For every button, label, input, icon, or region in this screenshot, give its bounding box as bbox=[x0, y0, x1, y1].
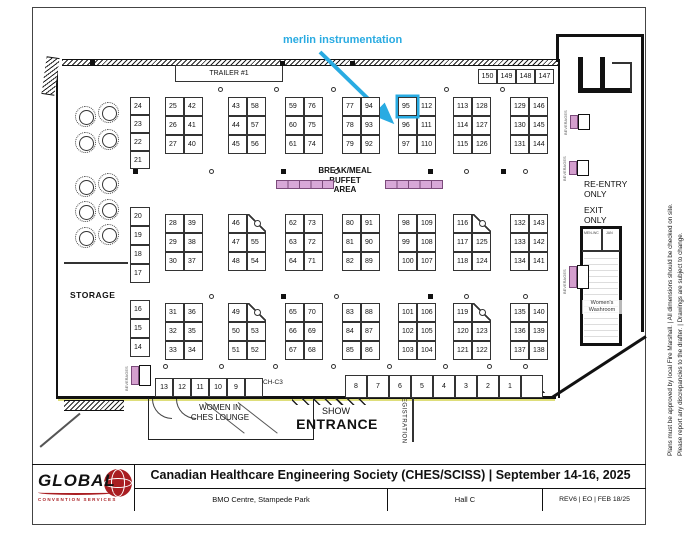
booths-layer: 2542264127404358445745565976607561747794… bbox=[0, 0, 690, 533]
beverage-station-label: BEVERAGES bbox=[125, 364, 131, 391]
booth-137: 137 bbox=[510, 341, 529, 360]
booth-38: 38 bbox=[184, 233, 203, 252]
booth-139: 139 bbox=[529, 322, 548, 341]
pillar-square bbox=[501, 169, 506, 174]
round-table-top bbox=[102, 106, 117, 121]
round-table-top bbox=[79, 136, 94, 151]
round-table bbox=[98, 224, 119, 245]
booth-74: 74 bbox=[304, 135, 323, 154]
booth-88: 88 bbox=[361, 303, 380, 322]
round-table-top bbox=[79, 180, 94, 195]
booth-99: 99 bbox=[398, 233, 417, 252]
round-table bbox=[75, 132, 96, 153]
pillar-square bbox=[428, 294, 433, 299]
booth-71: 71 bbox=[304, 252, 323, 271]
booth-132: 132 bbox=[510, 214, 529, 233]
booth-10: 10 bbox=[209, 378, 227, 397]
booth-34: 34 bbox=[184, 341, 203, 360]
booth-133: 133 bbox=[510, 233, 529, 252]
booth-9: 9 bbox=[227, 378, 245, 397]
pillar-circle bbox=[163, 364, 168, 369]
booth-116: 116 bbox=[453, 214, 472, 233]
booth-66: 66 bbox=[285, 322, 304, 341]
booth-55: 55 bbox=[247, 233, 266, 252]
booth-15: 15 bbox=[130, 319, 150, 338]
round-table-top bbox=[79, 110, 94, 125]
booth-83: 83 bbox=[342, 303, 361, 322]
booth-58: 58 bbox=[247, 97, 266, 116]
round-table bbox=[75, 176, 96, 197]
booth-39: 39 bbox=[184, 214, 203, 233]
booth-104: 104 bbox=[417, 341, 436, 360]
booth-143: 143 bbox=[529, 214, 548, 233]
booth-42: 42 bbox=[184, 97, 203, 116]
pillar-circle bbox=[464, 169, 469, 174]
round-table-top bbox=[102, 177, 117, 192]
booth-89: 89 bbox=[361, 252, 380, 271]
pillar-circle bbox=[274, 87, 279, 92]
booth-26: 26 bbox=[165, 116, 184, 135]
booth-121: 121 bbox=[453, 341, 472, 360]
pillar-circle bbox=[218, 87, 223, 92]
round-table bbox=[98, 129, 119, 150]
booth-79: 79 bbox=[342, 135, 361, 154]
floor-plan-sheet: TRAILER #1 merlin instrumentation BREAK/… bbox=[0, 0, 690, 533]
round-table bbox=[75, 106, 96, 127]
booth-3: 3 bbox=[455, 375, 477, 398]
booth-52: 52 bbox=[247, 341, 266, 360]
booth-corner-cut bbox=[247, 303, 266, 322]
booth-142: 142 bbox=[529, 233, 548, 252]
booth-36: 36 bbox=[184, 303, 203, 322]
empty-cell bbox=[245, 378, 263, 397]
booth-120: 120 bbox=[453, 322, 472, 341]
booth-107: 107 bbox=[417, 252, 436, 271]
booth-131: 131 bbox=[510, 135, 529, 154]
booth-33: 33 bbox=[165, 341, 184, 360]
booth-117: 117 bbox=[453, 233, 472, 252]
booth-76: 76 bbox=[304, 97, 323, 116]
booth-22: 22 bbox=[130, 133, 150, 151]
footer-hall-cell: Hall C bbox=[388, 489, 543, 511]
pillar-square bbox=[350, 61, 355, 66]
booth-43: 43 bbox=[228, 97, 247, 116]
booth-102: 102 bbox=[398, 322, 417, 341]
pillar-square bbox=[133, 169, 138, 174]
booth-64: 64 bbox=[285, 252, 304, 271]
booth-45: 45 bbox=[228, 135, 247, 154]
booth-corner-cut bbox=[472, 214, 491, 233]
booth-37: 37 bbox=[184, 252, 203, 271]
booth-57: 57 bbox=[247, 116, 266, 135]
booth-54: 54 bbox=[247, 252, 266, 271]
booth-62: 62 bbox=[285, 214, 304, 233]
booth-46: 46 bbox=[228, 214, 247, 233]
booth-100: 100 bbox=[398, 252, 417, 271]
booth-23: 23 bbox=[130, 115, 150, 133]
pillar-square bbox=[428, 169, 433, 174]
booth-35: 35 bbox=[184, 322, 203, 341]
beverage-station-label: BEVERAGES bbox=[563, 159, 569, 181]
pillar-circle bbox=[479, 220, 486, 227]
pillar-circle bbox=[444, 87, 449, 92]
pillar-circle bbox=[334, 294, 339, 299]
booth-90: 90 bbox=[361, 233, 380, 252]
booth-8: 8 bbox=[345, 375, 367, 398]
booth-27: 27 bbox=[165, 135, 184, 154]
booth-12: 12 bbox=[173, 378, 191, 397]
booth-72: 72 bbox=[304, 233, 323, 252]
booth-1: 1 bbox=[499, 375, 521, 398]
booth-4: 4 bbox=[433, 375, 455, 398]
pillar-circle bbox=[209, 169, 214, 174]
round-table bbox=[98, 102, 119, 123]
booth-51: 51 bbox=[228, 341, 247, 360]
pillar-square bbox=[281, 169, 286, 174]
booth-122: 122 bbox=[472, 341, 491, 360]
booth-147: 147 bbox=[535, 69, 554, 84]
booth-86: 86 bbox=[361, 341, 380, 360]
round-table-top bbox=[79, 205, 94, 220]
booth-14: 14 bbox=[130, 338, 150, 357]
round-table-top bbox=[102, 133, 117, 148]
booth-63: 63 bbox=[285, 233, 304, 252]
pillar-circle bbox=[254, 309, 261, 316]
booth-13: 13 bbox=[155, 378, 173, 397]
beverage-station-counter bbox=[578, 114, 590, 130]
booth-138: 138 bbox=[529, 341, 548, 360]
booth-101: 101 bbox=[398, 303, 417, 322]
booth-70: 70 bbox=[304, 303, 323, 322]
booth-24: 24 bbox=[130, 97, 150, 115]
booth-30: 30 bbox=[165, 252, 184, 271]
booth-16: 16 bbox=[130, 300, 150, 319]
booth-32: 32 bbox=[165, 322, 184, 341]
booth-69: 69 bbox=[304, 322, 323, 341]
pillar-circle bbox=[464, 294, 469, 299]
booth-19: 19 bbox=[130, 226, 150, 245]
footer-revision-cell: REV6 | EO | FEB 18/25 bbox=[543, 489, 646, 511]
booth-49: 49 bbox=[228, 303, 247, 322]
pillar-square bbox=[90, 60, 95, 65]
booth-59: 59 bbox=[285, 97, 304, 116]
round-table bbox=[98, 199, 119, 220]
booth-97: 97 bbox=[398, 135, 417, 154]
logo-swoosh bbox=[38, 490, 114, 495]
booth-149: 149 bbox=[497, 69, 516, 84]
margin-note-2: Please report any discrepancies to the d… bbox=[677, 20, 686, 456]
booth-61: 61 bbox=[285, 135, 304, 154]
pillar-circle bbox=[523, 364, 528, 369]
round-table-top bbox=[102, 203, 117, 218]
booth-134: 134 bbox=[510, 252, 529, 271]
round-table bbox=[75, 227, 96, 248]
booth-81: 81 bbox=[342, 233, 361, 252]
booth-109: 109 bbox=[417, 214, 436, 233]
booth-135: 135 bbox=[510, 303, 529, 322]
booth-130: 130 bbox=[510, 116, 529, 135]
booth-108: 108 bbox=[417, 233, 436, 252]
booth-140: 140 bbox=[529, 303, 548, 322]
booth-65: 65 bbox=[285, 303, 304, 322]
booth-80: 80 bbox=[342, 214, 361, 233]
booth-75: 75 bbox=[304, 116, 323, 135]
pillar-circle bbox=[273, 364, 278, 369]
booth-68: 68 bbox=[304, 341, 323, 360]
booth-111: 111 bbox=[417, 116, 436, 135]
booth-124: 124 bbox=[472, 252, 491, 271]
footer-logo-cell: GLOBAL CONVENTION SERVICES bbox=[32, 464, 135, 511]
booth-94: 94 bbox=[361, 97, 380, 116]
booth-144: 144 bbox=[529, 135, 548, 154]
booth-103: 103 bbox=[398, 341, 417, 360]
booth-85: 85 bbox=[342, 341, 361, 360]
booth-5: 5 bbox=[411, 375, 433, 398]
round-table bbox=[98, 173, 119, 194]
beverage-station bbox=[569, 161, 577, 175]
pillar-circle bbox=[479, 309, 486, 316]
booth-115: 115 bbox=[453, 135, 472, 154]
booth-77: 77 bbox=[342, 97, 361, 116]
booth-106: 106 bbox=[417, 303, 436, 322]
booth-87: 87 bbox=[361, 322, 380, 341]
booth-60: 60 bbox=[285, 116, 304, 135]
booth-93: 93 bbox=[361, 116, 380, 135]
pillar-circle bbox=[487, 364, 492, 369]
booth-47: 47 bbox=[228, 233, 247, 252]
pillar-circle bbox=[523, 169, 528, 174]
booth-11: 11 bbox=[191, 378, 209, 397]
booth-53: 53 bbox=[247, 322, 266, 341]
booth-20: 20 bbox=[130, 207, 150, 226]
beverage-station bbox=[570, 115, 578, 129]
round-table-top bbox=[79, 231, 94, 246]
booth-136: 136 bbox=[510, 322, 529, 341]
round-table bbox=[75, 201, 96, 222]
booth-40: 40 bbox=[184, 135, 203, 154]
pillar-circle bbox=[219, 364, 224, 369]
booth-17: 17 bbox=[130, 264, 150, 283]
booth-91: 91 bbox=[361, 214, 380, 233]
event-title: Canadian Healthcare Engineering Society … bbox=[150, 469, 630, 483]
booth-141: 141 bbox=[529, 252, 548, 271]
booth-44: 44 bbox=[228, 116, 247, 135]
booth-21: 21 bbox=[130, 151, 150, 169]
booth-92: 92 bbox=[361, 135, 380, 154]
booth-25: 25 bbox=[165, 97, 184, 116]
booth-123: 123 bbox=[472, 322, 491, 341]
booth-18: 18 bbox=[130, 245, 150, 264]
booth-112: 112 bbox=[417, 97, 436, 116]
logo-wordmark: GLOBAL bbox=[38, 472, 116, 491]
hall-label: Hall C bbox=[455, 496, 475, 504]
venue-label: BMO Centre, Stampede Park bbox=[212, 496, 310, 504]
booth-98: 98 bbox=[398, 214, 417, 233]
booth-145: 145 bbox=[529, 116, 548, 135]
pillar-circle bbox=[500, 87, 505, 92]
booth-148: 148 bbox=[516, 69, 535, 84]
booth-129: 129 bbox=[510, 97, 529, 116]
booth-73: 73 bbox=[304, 214, 323, 233]
booth-82: 82 bbox=[342, 252, 361, 271]
booth-48: 48 bbox=[228, 252, 247, 271]
booth-114: 114 bbox=[453, 116, 472, 135]
booth-7: 7 bbox=[367, 375, 389, 398]
pillar-circle bbox=[331, 87, 336, 92]
beverage-station-counter bbox=[139, 365, 151, 386]
beverage-station-label: BEVERAGES bbox=[563, 264, 569, 294]
booth-78: 78 bbox=[342, 116, 361, 135]
booth-150: 150 bbox=[478, 69, 497, 84]
booth-95: 95 bbox=[398, 97, 417, 116]
booth-84: 84 bbox=[342, 322, 361, 341]
booth-corner-cut bbox=[247, 214, 266, 233]
pillar-circle bbox=[523, 294, 528, 299]
booth-125: 125 bbox=[472, 233, 491, 252]
booth-28: 28 bbox=[165, 214, 184, 233]
booth-6: 6 bbox=[389, 375, 411, 398]
pillar-circle bbox=[209, 294, 214, 299]
pillar-circle bbox=[443, 364, 448, 369]
booth-41: 41 bbox=[184, 116, 203, 135]
booth-110: 110 bbox=[417, 135, 436, 154]
booth-119: 119 bbox=[453, 303, 472, 322]
beverage-station-label: BEVERAGES bbox=[564, 113, 570, 135]
booth-29: 29 bbox=[165, 233, 184, 252]
booth-118: 118 bbox=[453, 252, 472, 271]
empty-cell bbox=[521, 375, 543, 398]
booth-105: 105 bbox=[417, 322, 436, 341]
pillar-square bbox=[280, 61, 285, 66]
logo-subtext: CONVENTION SERVICES bbox=[38, 498, 117, 503]
beverage-station bbox=[569, 266, 577, 288]
booth-146: 146 bbox=[529, 97, 548, 116]
beverage-station bbox=[131, 366, 139, 385]
pillar-circle bbox=[387, 364, 392, 369]
beverage-station-counter bbox=[577, 265, 589, 289]
booth-128: 128 bbox=[472, 97, 491, 116]
booth-96: 96 bbox=[398, 116, 417, 135]
margin-note-1: Plans must be approved by local Fire Mar… bbox=[667, 20, 676, 456]
booth-2: 2 bbox=[477, 375, 499, 398]
pillar-circle bbox=[254, 220, 261, 227]
booth-67: 67 bbox=[285, 341, 304, 360]
booth-56: 56 bbox=[247, 135, 266, 154]
booth-113: 113 bbox=[453, 97, 472, 116]
beverage-station-counter bbox=[577, 160, 589, 176]
booth-50: 50 bbox=[228, 322, 247, 341]
round-table-top bbox=[102, 228, 117, 243]
booth-31: 31 bbox=[165, 303, 184, 322]
footer-title-cell: Canadian Healthcare Engineering Society … bbox=[135, 464, 646, 489]
pillar-circle bbox=[331, 364, 336, 369]
footer-venue-cell: BMO Centre, Stampede Park bbox=[135, 489, 388, 511]
revision-label: REV6 | EO | FEB 18/25 bbox=[559, 496, 630, 503]
booth-corner-cut bbox=[472, 303, 491, 322]
booth-127: 127 bbox=[472, 116, 491, 135]
pillar-circle bbox=[334, 169, 339, 174]
pillar-square bbox=[281, 294, 286, 299]
booth-126: 126 bbox=[472, 135, 491, 154]
